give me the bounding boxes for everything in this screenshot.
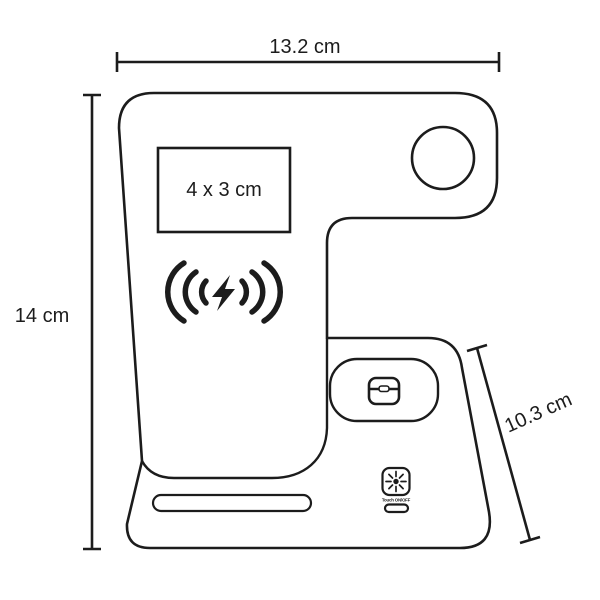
touch-button-led: [385, 505, 408, 513]
earbuds-case-icon: [369, 378, 399, 404]
touch-button-label: Touch ON/OFF: [382, 498, 411, 503]
base-slot: [153, 495, 311, 511]
touch-button-center-dot: [393, 479, 398, 484]
earbuds-dock: [330, 359, 438, 421]
dimension-drawing: 13.2 cm 14 cm 10.3 cm 4 x 3 cm: [0, 0, 600, 600]
height-dimension-label: 14 cm: [15, 305, 69, 327]
depth-dimension-label: 10.3 cm: [501, 388, 575, 437]
print-area-label: 4 x 3 cm: [186, 179, 262, 201]
touch-power-icon: Touch ON/OFF: [382, 468, 411, 512]
width-dimension-label: 13.2 cm: [269, 36, 340, 58]
watch-charger-circle: [412, 127, 474, 189]
diagram-canvas: 13.2 cm 14 cm 10.3 cm 4 x 3 cm: [0, 0, 600, 600]
height-dimension: [83, 95, 101, 549]
